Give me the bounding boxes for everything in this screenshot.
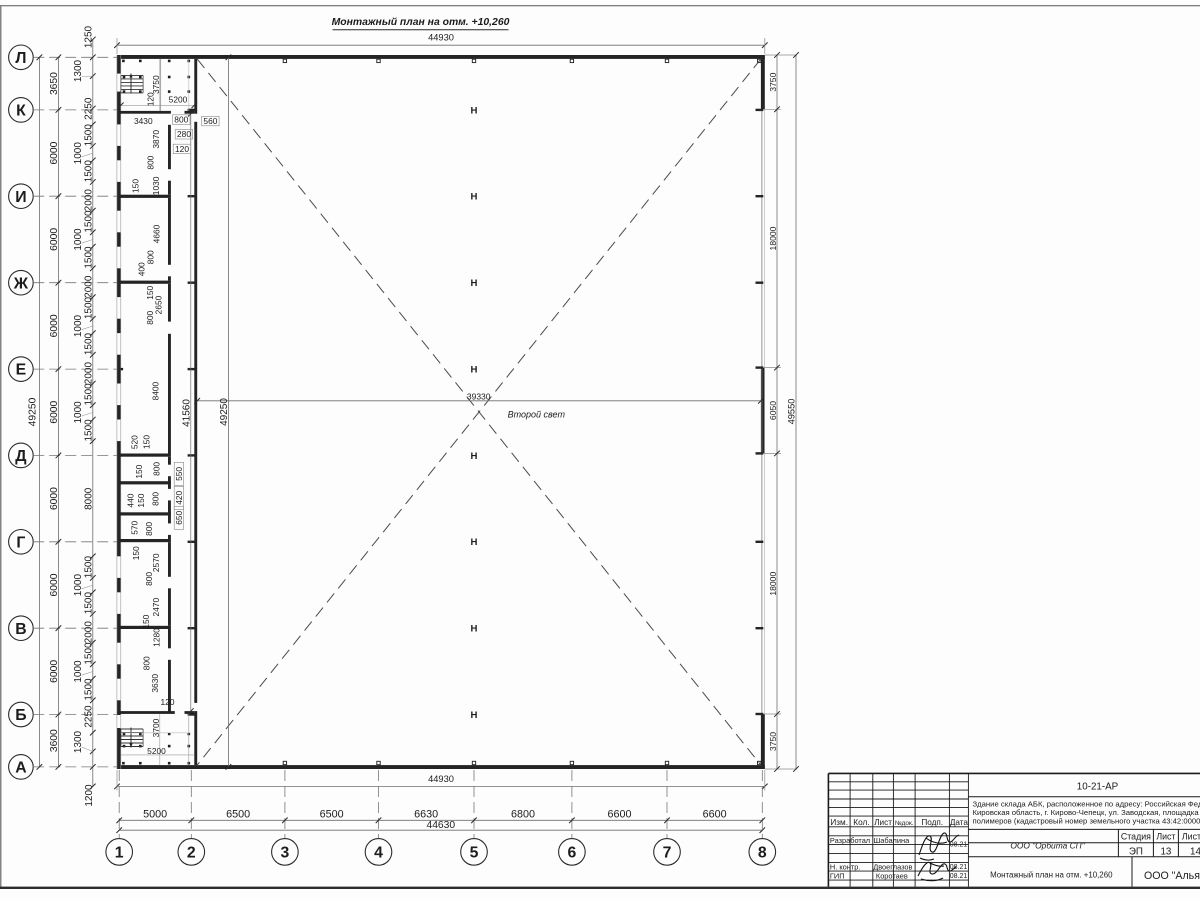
svg-text:800: 800 <box>174 115 188 125</box>
svg-text:4: 4 <box>374 844 383 861</box>
svg-text:1500: 1500 <box>84 556 95 579</box>
svg-text:1: 1 <box>115 844 124 861</box>
svg-text:44930: 44930 <box>428 33 454 43</box>
svg-text:800: 800 <box>151 492 161 506</box>
svg-text:150: 150 <box>131 179 141 193</box>
svg-text:ЭП: ЭП <box>1129 847 1143 858</box>
svg-text:18000: 18000 <box>768 572 778 596</box>
svg-text:Дата: Дата <box>950 818 969 827</box>
svg-text:49250: 49250 <box>219 398 230 426</box>
svg-text:Листов: Листов <box>1182 832 1200 842</box>
svg-text:3630: 3630 <box>150 674 160 693</box>
svg-text:H: H <box>471 451 478 462</box>
svg-text:6630: 6630 <box>414 809 438 821</box>
svg-text:800: 800 <box>146 250 156 264</box>
svg-text:Второй свет: Второй свет <box>508 409 566 419</box>
svg-text:3600: 3600 <box>49 729 60 752</box>
svg-text:3650: 3650 <box>49 72 60 95</box>
svg-text:1000: 1000 <box>73 401 84 424</box>
svg-text:650: 650 <box>174 510 184 524</box>
svg-text:8000: 8000 <box>84 487 95 510</box>
svg-text:В: В <box>15 621 26 638</box>
svg-text:4660: 4660 <box>152 224 162 243</box>
svg-text:К: К <box>16 103 26 120</box>
svg-text:6600: 6600 <box>703 809 727 821</box>
svg-text:1500: 1500 <box>84 210 95 233</box>
svg-text:2570: 2570 <box>151 553 161 572</box>
svg-text:3700: 3700 <box>151 718 161 737</box>
svg-text:41560: 41560 <box>181 399 192 427</box>
svg-text:2250: 2250 <box>84 705 95 728</box>
svg-text:3430: 3430 <box>134 116 153 126</box>
svg-text:10-21-АР: 10-21-АР <box>1077 782 1119 793</box>
svg-text:800: 800 <box>152 462 162 476</box>
svg-text:Лист: Лист <box>1156 832 1175 842</box>
svg-text:Е: Е <box>16 362 27 379</box>
svg-text:6800: 6800 <box>511 809 535 821</box>
svg-text:1200: 1200 <box>84 784 95 807</box>
svg-text:420: 420 <box>174 490 184 504</box>
svg-text:Н. контр.: Н. контр. <box>830 863 861 872</box>
svg-text:ГИП: ГИП <box>830 872 845 881</box>
svg-text:Г: Г <box>16 534 25 551</box>
svg-text:1000: 1000 <box>73 574 84 597</box>
svg-text:1500: 1500 <box>84 246 95 269</box>
svg-text:5200: 5200 <box>169 95 188 105</box>
svg-text:1000: 1000 <box>73 228 84 251</box>
svg-text:44930: 44930 <box>428 774 454 784</box>
svg-text:6000: 6000 <box>49 660 60 683</box>
svg-text:550: 550 <box>174 467 184 481</box>
svg-text:3750: 3750 <box>768 72 778 91</box>
svg-text:5200: 5200 <box>147 746 166 756</box>
svg-text:560: 560 <box>203 116 217 126</box>
svg-text:2000: 2000 <box>84 621 95 644</box>
svg-text:H: H <box>471 710 478 721</box>
svg-text:150: 150 <box>134 464 144 478</box>
svg-text:1500: 1500 <box>84 332 95 355</box>
svg-text:800: 800 <box>144 522 154 536</box>
svg-text:2000: 2000 <box>84 362 95 385</box>
svg-text:150: 150 <box>136 493 146 507</box>
svg-text:150: 150 <box>142 435 152 449</box>
svg-text:5: 5 <box>470 844 479 861</box>
svg-text:800: 800 <box>142 656 152 670</box>
svg-text:120: 120 <box>145 92 155 106</box>
svg-text:3870: 3870 <box>151 130 161 149</box>
svg-text:Лист: Лист <box>874 818 892 827</box>
svg-text:1300: 1300 <box>73 730 84 753</box>
svg-text:ООО "Альянс-: ООО "Альянс- <box>1144 870 1200 882</box>
svg-text:Монтажный план на отм. +10,260: Монтажный план на отм. +10,260 <box>332 17 510 28</box>
svg-text:полимеров (кадастровый номер з: полимеров (кадастровый номер земельного … <box>973 817 1200 826</box>
svg-text:Л: Л <box>15 50 26 67</box>
svg-text:14: 14 <box>1190 847 1200 858</box>
svg-text:№док.: №док. <box>895 820 914 827</box>
svg-text:1500: 1500 <box>84 124 95 147</box>
svg-text:Б: Б <box>15 707 26 724</box>
svg-text:1000: 1000 <box>73 660 84 683</box>
svg-text:1500: 1500 <box>84 296 95 319</box>
svg-text:2250: 2250 <box>84 97 95 120</box>
svg-text:6050: 6050 <box>768 401 778 420</box>
svg-text:1000: 1000 <box>73 314 84 337</box>
svg-text:150: 150 <box>131 546 141 560</box>
svg-text:120: 120 <box>175 144 189 154</box>
svg-text:6500: 6500 <box>320 809 344 821</box>
svg-text:570: 570 <box>129 520 139 534</box>
svg-text:6600: 6600 <box>607 809 631 821</box>
svg-text:6000: 6000 <box>49 573 60 596</box>
svg-text:6: 6 <box>568 844 577 861</box>
svg-text:800: 800 <box>145 310 155 324</box>
svg-text:1280: 1280 <box>152 628 162 647</box>
svg-text:400: 400 <box>136 262 146 276</box>
svg-text:6500: 6500 <box>226 809 250 821</box>
svg-text:5000: 5000 <box>143 809 167 821</box>
svg-text:И: И <box>15 189 26 206</box>
svg-text:3750: 3750 <box>768 732 778 751</box>
svg-text:А: А <box>15 760 26 777</box>
svg-text:8: 8 <box>758 844 767 861</box>
svg-text:1250: 1250 <box>83 25 94 48</box>
svg-text:2: 2 <box>187 844 196 861</box>
svg-text:1500: 1500 <box>84 642 95 665</box>
svg-text:49550: 49550 <box>787 399 797 425</box>
svg-text:Разработал: Разработал <box>830 836 870 845</box>
svg-text:3: 3 <box>281 844 290 861</box>
svg-text:6000: 6000 <box>49 141 60 164</box>
svg-text:Стадия: Стадия <box>1121 832 1151 842</box>
svg-text:8400: 8400 <box>151 381 161 400</box>
svg-text:1300: 1300 <box>73 59 84 82</box>
svg-text:1000: 1000 <box>73 142 84 165</box>
svg-text:800: 800 <box>146 155 156 169</box>
svg-text:08.21: 08.21 <box>950 842 968 849</box>
svg-text:2000: 2000 <box>84 189 95 212</box>
svg-text:Изм.: Изм. <box>830 818 848 827</box>
svg-text:13: 13 <box>1160 847 1171 858</box>
svg-text:1500: 1500 <box>84 383 95 406</box>
svg-text:39330: 39330 <box>467 391 491 401</box>
svg-text:1500: 1500 <box>84 160 95 183</box>
svg-text:H: H <box>471 192 478 203</box>
svg-text:44630: 44630 <box>426 820 455 831</box>
svg-text:18000: 18000 <box>768 226 778 250</box>
svg-text:1030: 1030 <box>151 176 161 195</box>
svg-text:Кол.: Кол. <box>853 818 869 827</box>
svg-text:6000: 6000 <box>49 487 60 510</box>
svg-text:1500: 1500 <box>84 419 95 442</box>
svg-text:6000: 6000 <box>49 314 60 337</box>
svg-text:800: 800 <box>144 572 154 586</box>
svg-text:Д: Д <box>15 448 26 465</box>
svg-text:3750: 3750 <box>151 75 161 94</box>
svg-text:520: 520 <box>129 435 139 449</box>
svg-text:Двоеглазов: Двоеглазов <box>873 863 912 872</box>
svg-text:120: 120 <box>161 697 175 707</box>
svg-text:440: 440 <box>126 493 136 507</box>
svg-text:49250: 49250 <box>28 397 39 426</box>
svg-text:6000: 6000 <box>49 228 60 251</box>
svg-text:2000: 2000 <box>84 275 95 298</box>
svg-text:280: 280 <box>177 129 191 139</box>
svg-text:1500: 1500 <box>84 592 95 615</box>
svg-text:08.21: 08.21 <box>950 873 968 880</box>
svg-text:7: 7 <box>663 844 672 861</box>
svg-text:1500: 1500 <box>84 678 95 701</box>
svg-text:Монтажный план на отм. +10,260: Монтажный план на отм. +10,260 <box>990 871 1113 880</box>
svg-text:Ж: Ж <box>13 275 29 292</box>
svg-text:Подп.: Подп. <box>921 818 943 827</box>
svg-text:Шабалина: Шабалина <box>874 836 911 845</box>
svg-text:H: H <box>471 624 478 635</box>
svg-text:6000: 6000 <box>49 400 60 423</box>
svg-text:ООО "Орбита СП": ООО "Орбита СП" <box>1010 841 1085 851</box>
svg-text:2470: 2470 <box>151 598 161 617</box>
svg-text:H: H <box>471 537 478 548</box>
svg-text:H: H <box>471 365 478 376</box>
svg-text:Коротаев: Коротаев <box>876 872 908 881</box>
svg-text:H: H <box>471 278 478 289</box>
svg-text:150: 150 <box>141 614 151 628</box>
svg-text:H: H <box>471 105 478 116</box>
